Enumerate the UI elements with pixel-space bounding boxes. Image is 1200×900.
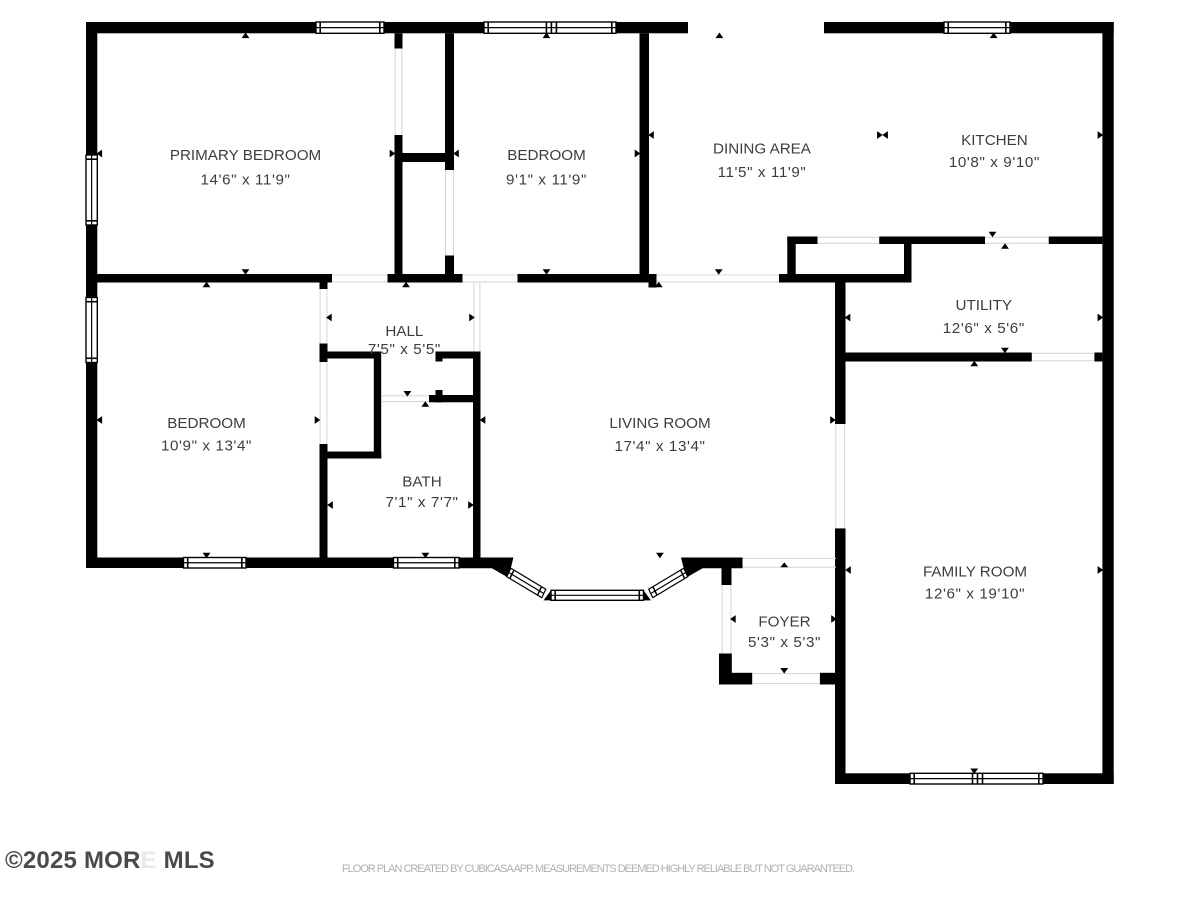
svg-text:17'4" x 13'4": 17'4" x 13'4" [614, 438, 705, 455]
svg-text:12'6" x 19'10": 12'6" x 19'10" [925, 586, 1025, 603]
svg-text:5'3" x 5'3": 5'3" x 5'3" [748, 634, 821, 651]
svg-text:FLOOR PLAN CREATED BY CUBICASA: FLOOR PLAN CREATED BY CUBICASA APP. MEAS… [342, 863, 855, 875]
svg-text:BEDROOM: BEDROOM [507, 147, 585, 164]
svg-text:©2025 MORE MLS: ©2025 MORE MLS [5, 847, 215, 874]
svg-text:11'5" x 11'9": 11'5" x 11'9" [718, 164, 807, 181]
svg-text:BATH: BATH [402, 474, 441, 491]
svg-text:UTILITY: UTILITY [956, 297, 1013, 314]
svg-text:9'1" x 11'9": 9'1" x 11'9" [506, 172, 587, 189]
svg-text:7'1" x 7'7": 7'1" x 7'7" [385, 494, 458, 511]
svg-text:HALL: HALL [385, 323, 423, 340]
svg-text:BEDROOM: BEDROOM [167, 415, 245, 432]
svg-text:10'8" x 9'10": 10'8" x 9'10" [949, 154, 1040, 171]
svg-text:FAMILY ROOM: FAMILY ROOM [923, 564, 1027, 581]
svg-text:LIVING ROOM: LIVING ROOM [609, 415, 710, 432]
svg-text:FOYER: FOYER [758, 614, 810, 631]
svg-text:7'5" x 5'5": 7'5" x 5'5" [368, 341, 441, 358]
svg-text:10'9" x 13'4": 10'9" x 13'4" [161, 437, 252, 454]
svg-text:12'6" x 5'6": 12'6" x 5'6" [943, 320, 1025, 337]
svg-text:KITCHEN: KITCHEN [961, 132, 1028, 149]
svg-text:PRIMARY BEDROOM: PRIMARY BEDROOM [170, 147, 321, 164]
svg-text:DINING AREA: DINING AREA [713, 141, 812, 158]
svg-text:14'6" x 11'9": 14'6" x 11'9" [201, 172, 291, 189]
